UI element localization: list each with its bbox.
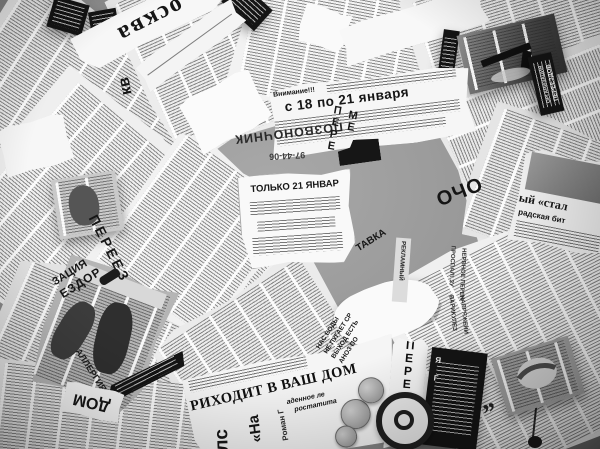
kv-text: кв — [97, 71, 155, 100]
na-text: «На — [245, 414, 266, 444]
pere-text: ПЕРЕ — [323, 104, 345, 154]
schedule-lines — [250, 196, 341, 216]
clipping-only21: ТОЛЬКО 21 ЯНВАР — [237, 168, 357, 270]
only21-text: ТОЛЬКО 21 ЯНВАР — [242, 177, 347, 195]
reklamny-text: РЕКЛАМНЫЙ — [397, 241, 406, 281]
stavka-text: ТАВКА — [354, 227, 388, 254]
me-text: МЕ — [343, 109, 361, 135]
schedule-lines — [252, 232, 343, 256]
nervnoe-text: НЕРВНОЕ ПЕРЕН — [458, 248, 467, 300]
phone-text: 97-44-06 — [269, 148, 306, 164]
truck-silhouette — [337, 136, 382, 166]
roman-text: Роман Г — [276, 408, 290, 441]
napryazheni-text: НАПРЯЖЕНИ — [459, 295, 469, 335]
ya-g-text: Я Г — [431, 355, 443, 383]
ocho-text: ОЧО — [434, 173, 487, 211]
newspaper-collage: осква кв ОРГАНИЗАЦИЯ ПЕРЕЕЗДОВ Внимание!… — [0, 0, 600, 449]
varikulez-strip: ВАРИКУЛЕЗ НАПРЯЖЕНИ — [447, 293, 478, 345]
lo-text: лс — [211, 429, 234, 449]
pendulum-bob — [528, 436, 542, 448]
prospal-text: ПРОСПАЛ! ЗУ — [447, 245, 455, 286]
clipping-pereme: ПЕРЕ МЕ — [317, 103, 389, 175]
schedule-lines — [257, 216, 336, 231]
phone-fragment: 97-44-06 — [255, 144, 320, 161]
ring-logo — [376, 392, 434, 449]
ring-inner — [394, 410, 414, 430]
